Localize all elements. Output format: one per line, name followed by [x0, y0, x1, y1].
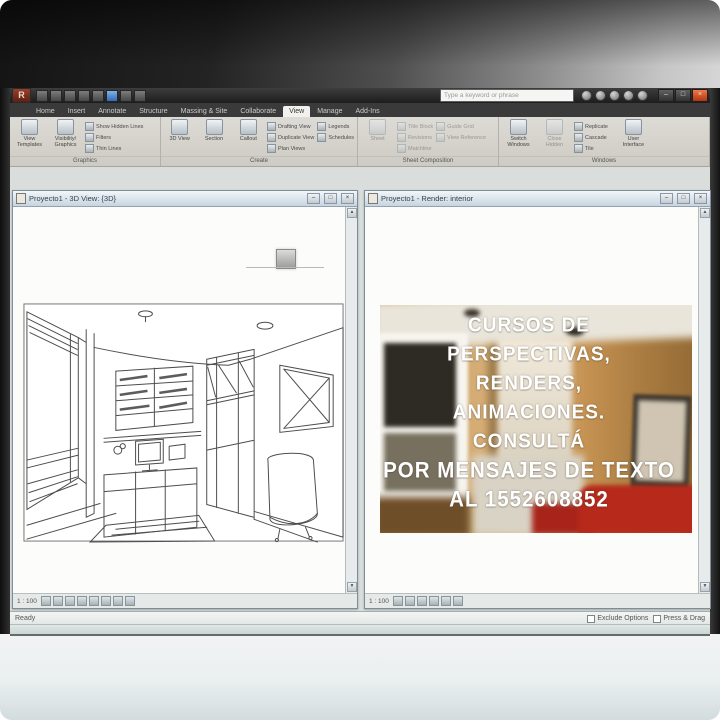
status-ready-text: Ready — [15, 615, 35, 622]
search-icon[interactable] — [581, 90, 592, 101]
advert-line: PERSPECTIVAS, — [365, 339, 695, 370]
sheet-icon — [369, 119, 386, 135]
visual-style-icon[interactable] — [405, 596, 415, 606]
ribbon-panel-create: 3D View Section Callout Drafting View — [161, 117, 358, 166]
view-reference-icon — [436, 133, 445, 142]
guide-grid-button[interactable]: Guide Grid — [436, 122, 486, 131]
dropdown-icon[interactable] — [134, 90, 146, 102]
item-label: Drafting View — [278, 124, 311, 130]
item-label: Schedules — [328, 135, 354, 141]
ribbon-panel-windows: Switch Windows Close Hidden Replicate — [499, 117, 710, 166]
view-control-bar: 1 : 100 — [13, 593, 357, 608]
ribbon-panel-sheet-composition: Sheet Title Block Revisions — [358, 117, 499, 166]
show-hidden-lines-button[interactable]: Show Hidden Lines — [85, 122, 143, 131]
item-label: View Reference — [447, 135, 486, 141]
wireframe-svg — [21, 300, 346, 546]
exclude-options-control[interactable]: Exclude Options — [587, 615, 648, 623]
child-restore-button[interactable]: □ — [324, 193, 337, 204]
item-label: Matchline — [408, 146, 432, 152]
status-bar: Ready Exclude Options Press & Drag — [10, 611, 710, 625]
thin-lines-icon — [85, 144, 94, 153]
visibility-graphics-icon — [57, 119, 74, 135]
view-control-bar: 1 : 100 — [365, 593, 710, 608]
redo-icon[interactable] — [78, 90, 90, 102]
scroll-up-icon[interactable]: ▲ — [347, 208, 357, 218]
section-button[interactable]: Section — [198, 119, 229, 142]
visibility-graphics-button[interactable]: Visibility/ Graphics — [49, 119, 82, 149]
app-titlebar: R Type a keyword or phrase — [10, 88, 710, 103]
guide-grid-icon — [436, 122, 445, 131]
thin-lines-button[interactable]: Thin Lines — [85, 144, 143, 153]
advert-line: CONSULTÁ — [365, 426, 695, 457]
cad-application-window: R Type a keyword or phrase — [10, 88, 710, 634]
user-interface-icon — [625, 119, 642, 135]
scroll-down-icon[interactable]: ▼ — [347, 582, 357, 592]
viewcube-axis-line — [246, 267, 324, 268]
panel-label-windows[interactable]: Windows — [499, 156, 709, 166]
button-label: Switch Windows — [502, 136, 535, 149]
modify-icon[interactable] — [106, 90, 118, 102]
communication-icon[interactable] — [609, 90, 620, 101]
duplicate-view-icon — [267, 133, 276, 142]
button-label: Visibility/ Graphics — [49, 136, 82, 149]
child-close-button[interactable]: × — [341, 193, 354, 204]
ribbon-panel-graphics: View Templates Visibility/ Graphics Show… — [10, 117, 161, 166]
revisions-button[interactable]: Revisions — [397, 133, 433, 142]
legends-icon — [317, 122, 326, 131]
application-menu-button[interactable]: R — [12, 88, 31, 103]
viewcube[interactable] — [276, 249, 296, 269]
item-label: Thin Lines — [96, 146, 121, 152]
filters-icon — [85, 133, 94, 142]
vertical-scrollbar[interactable]: ▲ ▼ — [345, 207, 357, 593]
callout-button[interactable]: Callout — [233, 119, 264, 142]
tile-icon — [574, 144, 583, 153]
close-hidden-button[interactable]: Close Hidden — [538, 119, 571, 149]
item-label: Title Block — [408, 124, 433, 130]
view-templates-button[interactable]: View Templates — [13, 119, 46, 149]
advert-line: POR MENSAJES DE TEXTO — [365, 455, 695, 486]
maximize-button[interactable]: □ — [675, 89, 691, 102]
callout-icon — [240, 119, 257, 135]
shadows-icon[interactable] — [429, 596, 439, 606]
detail-level-icon[interactable] — [393, 596, 403, 606]
tab-insert[interactable]: Insert — [62, 106, 92, 117]
isolate-icon[interactable] — [125, 596, 135, 606]
item-label: Guide Grid — [447, 124, 474, 130]
replicate-icon — [574, 122, 583, 131]
child-close-button[interactable]: × — [694, 193, 707, 204]
item-label: Duplicate View — [278, 135, 314, 141]
3d-view-icon — [171, 119, 188, 135]
sheet-button[interactable]: Sheet — [361, 119, 394, 142]
undo-icon[interactable] — [64, 90, 76, 102]
exchange-icon[interactable] — [595, 90, 606, 101]
button-label: Section — [205, 136, 223, 142]
item-label: Tile — [585, 146, 594, 152]
checkbox-icon[interactable] — [653, 615, 661, 623]
item-label: Revisions — [408, 135, 432, 141]
item-label: Legends — [328, 124, 349, 130]
checkbox-icon[interactable] — [587, 615, 595, 623]
segment-label: Exclude Options — [597, 615, 648, 622]
button-label: 3D View — [169, 136, 189, 142]
scroll-down-icon[interactable]: ▼ — [700, 582, 710, 592]
user-interface-button[interactable]: User Interface — [617, 119, 650, 149]
child-minimize-button[interactable]: – — [307, 193, 320, 204]
tab-manage[interactable]: Manage — [311, 106, 348, 117]
tab-addins[interactable]: Add-Ins — [349, 106, 385, 117]
plan-views-button[interactable]: Plan Views — [267, 144, 314, 153]
vertical-scrollbar[interactable]: ▲ ▼ — [698, 207, 710, 593]
save-icon[interactable] — [50, 90, 62, 102]
workspace-icon[interactable] — [120, 90, 132, 102]
view-scale[interactable]: 1 : 100 — [369, 598, 389, 605]
tab-collaborate[interactable]: Collaborate — [234, 106, 282, 117]
title-block-icon — [397, 122, 406, 131]
open-icon[interactable] — [36, 90, 48, 102]
child-window-title: Proyecto1 - 3D View: {3D} — [29, 194, 303, 203]
print-icon[interactable] — [92, 90, 104, 102]
isolate-icon[interactable] — [453, 596, 463, 606]
photo-frame: R Type a keyword or phrase — [0, 0, 720, 720]
tab-view-active[interactable]: View — [283, 106, 310, 117]
advert-line: CURSOS DE — [365, 310, 695, 341]
document-icon — [368, 193, 378, 204]
close-hidden-icon — [546, 119, 563, 135]
crop-region-icon[interactable] — [113, 596, 123, 606]
switch-windows-icon — [510, 119, 527, 135]
view-reference-button[interactable]: View Reference — [436, 133, 486, 142]
panel-label-sheet-composition[interactable]: Sheet Composition — [358, 156, 498, 166]
replicate-button[interactable]: Replicate — [574, 122, 608, 131]
window-controls: – □ × — [658, 89, 708, 102]
matchline-button[interactable]: Matchline — [397, 144, 433, 153]
render-canvas[interactable]: CURSOS DE PERSPECTIVAS, RENDERS, ANIMACI… — [365, 207, 699, 593]
background-right-edge — [710, 88, 720, 634]
detail-level-icon[interactable] — [41, 596, 51, 606]
infocenter-icons — [581, 90, 648, 101]
item-label: Replicate — [585, 124, 608, 130]
document-window-render: Proyecto1 - Render: interior – □ × — [364, 190, 711, 609]
advert-line: RENDERS, — [365, 368, 695, 399]
button-label: View Templates — [13, 136, 46, 149]
scroll-up-icon[interactable]: ▲ — [700, 208, 710, 218]
shadows-icon[interactable] — [77, 596, 87, 606]
help-icon[interactable] — [637, 90, 648, 101]
view-templates-icon — [21, 119, 38, 135]
advert-text-overlay: CURSOS DE PERSPECTIVAS, RENDERS, ANIMACI… — [365, 311, 695, 514]
background-top-gradient — [0, 0, 720, 88]
close-button[interactable]: × — [692, 89, 708, 102]
wireframe-perspective-drawing — [21, 300, 346, 546]
filters-button[interactable]: Filters — [85, 133, 143, 142]
hidden-lines-icon — [85, 122, 94, 131]
minimize-button[interactable]: – — [658, 89, 674, 102]
tile-button[interactable]: Tile — [574, 144, 608, 153]
drawing-canvas[interactable] — [13, 207, 346, 593]
revisions-icon — [397, 133, 406, 142]
render-icon[interactable] — [89, 596, 99, 606]
status-substrip — [10, 624, 710, 634]
button-label: Close Hidden — [538, 136, 571, 149]
favorites-icon[interactable] — [623, 90, 634, 101]
panel-label-graphics[interactable]: Graphics — [10, 156, 160, 166]
ribbon: View Templates Visibility/ Graphics Show… — [10, 117, 710, 167]
button-label: Sheet — [370, 136, 384, 142]
segment-label: Press & Drag — [663, 615, 705, 622]
sun-path-icon[interactable] — [65, 596, 75, 606]
cascade-button[interactable]: Cascade — [574, 133, 608, 142]
press-drag-control[interactable]: Press & Drag — [653, 615, 705, 623]
crop-view-icon[interactable] — [101, 596, 111, 606]
child-titlebar[interactable]: Proyecto1 - Render: interior – □ × — [365, 191, 710, 207]
crop-view-icon[interactable] — [441, 596, 451, 606]
quick-access-toolbar — [36, 90, 146, 102]
tab-annotate[interactable]: Annotate — [92, 106, 132, 117]
3d-view-button[interactable]: 3D View — [164, 119, 195, 142]
duplicate-view-button[interactable]: Duplicate View — [267, 133, 314, 142]
switch-windows-button[interactable]: Switch Windows — [502, 119, 535, 149]
drafting-view-button[interactable]: Drafting View — [267, 122, 314, 131]
panel-label-create[interactable]: Create — [161, 156, 357, 166]
tab-home[interactable]: Home — [30, 106, 61, 117]
button-label: User Interface — [617, 136, 650, 149]
schedules-button[interactable]: Schedules — [317, 133, 354, 142]
child-restore-button[interactable]: □ — [677, 193, 690, 204]
item-label: Plan Views — [278, 146, 305, 152]
schedules-icon — [317, 133, 326, 142]
visual-style-icon[interactable] — [53, 596, 63, 606]
search-input[interactable]: Type a keyword or phrase — [440, 89, 574, 102]
item-label: Filters — [96, 135, 111, 141]
plan-views-icon — [267, 144, 276, 153]
item-label: Cascade — [585, 135, 607, 141]
item-label: Show Hidden Lines — [96, 124, 143, 130]
ribbon-tab-bar: Home Insert Annotate Structure Massing &… — [10, 103, 710, 117]
matchline-icon — [397, 144, 406, 153]
child-titlebar[interactable]: Proyecto1 - 3D View: {3D} – □ × — [13, 191, 357, 207]
cascade-icon — [574, 133, 583, 142]
child-window-title: Proyecto1 - Render: interior — [381, 194, 656, 203]
background-left-edge — [0, 88, 10, 634]
tab-structure[interactable]: Structure — [133, 106, 173, 117]
background-bottom-gradient — [0, 634, 720, 720]
tab-massing-site[interactable]: Massing & Site — [175, 106, 234, 117]
document-icon — [16, 193, 26, 204]
section-icon — [206, 119, 223, 135]
document-window-3d-view: Proyecto1 - 3D View: {3D} – □ × — [12, 190, 358, 609]
sun-path-icon[interactable] — [417, 596, 427, 606]
view-scale[interactable]: 1 : 100 — [17, 598, 37, 605]
button-label: Callout — [240, 136, 257, 142]
title-block-button[interactable]: Title Block — [397, 122, 433, 131]
advert-phone-number: AL 1552608852 — [365, 484, 695, 515]
child-minimize-button[interactable]: – — [660, 193, 673, 204]
legends-button[interactable]: Legends — [317, 122, 354, 131]
advert-line: ANIMACIONES. — [365, 397, 695, 428]
drafting-view-icon — [267, 122, 276, 131]
